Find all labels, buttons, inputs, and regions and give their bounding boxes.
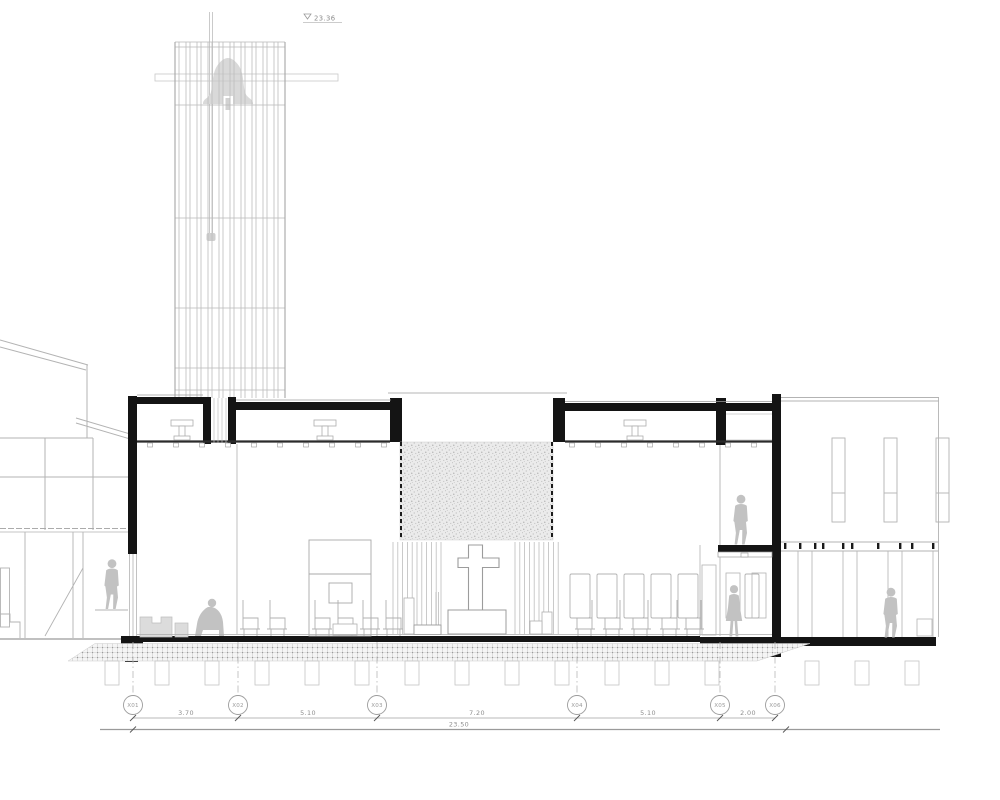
bell-support-beam (155, 74, 338, 81)
annex-mullions (798, 551, 933, 637)
gallery-column (716, 398, 726, 445)
door-panel (702, 565, 716, 635)
grid-bubble-x02: X02 (229, 696, 248, 715)
annex-tick-row (784, 543, 934, 549)
cross-symbol (458, 545, 499, 612)
sanctuary-step-right-2 (530, 621, 542, 634)
grid-bubble-label: X03 (371, 703, 383, 709)
tower-core-slats (214, 398, 226, 443)
roof-slab-mid (236, 402, 391, 410)
dim-seg-2: 5.10 (300, 709, 316, 717)
left-annex-building (0, 340, 137, 639)
annex-box (917, 619, 932, 636)
person-figure-gallery (733, 495, 747, 545)
sanctuary-step-right-1 (542, 612, 552, 634)
person-seated-figure (195, 599, 224, 636)
annex-windows (832, 438, 949, 522)
floor-slab-nave (121, 636, 700, 642)
roof-slab-right (565, 403, 772, 411)
grid-bubble-x05: X05 (711, 696, 730, 715)
left-wall-glazing (130, 554, 137, 636)
gallery-floor-slab (718, 545, 772, 552)
tower-core-column-left (203, 397, 211, 444)
grid-bubble-x01: X01 (124, 696, 143, 715)
dim-seg-1: 3.70 (178, 709, 194, 717)
nave-interior (137, 442, 772, 637)
ambo (414, 625, 441, 635)
foundation (68, 644, 919, 686)
dim-overall: 23.50 (449, 721, 469, 729)
right-annex-building (781, 397, 949, 638)
level-marker: 23.36 (303, 14, 342, 23)
organ-steps-2 (175, 623, 188, 637)
roof-slab-left (137, 397, 203, 404)
grid-bubble-x04: X04 (568, 696, 587, 715)
bell-tower (155, 12, 338, 398)
grid-bubble-label: X06 (769, 703, 781, 709)
section-drawing: 23.36 (0, 0, 1000, 800)
grid-bubble-label: X02 (232, 703, 244, 709)
organ-steps (140, 617, 172, 637)
dim-seg-5: 2.00 (740, 709, 756, 717)
roof-beams (171, 420, 646, 440)
sanctuary-step-left (404, 598, 414, 634)
piles (105, 661, 919, 685)
drawing-canvas: 23.36 (0, 0, 1000, 800)
baptistery-box (309, 540, 371, 636)
foundation-hatch (68, 644, 810, 662)
kneeler-bench (333, 624, 357, 635)
dim-seg-3: 7.20 (469, 709, 485, 717)
grid-bubble-label: X01 (127, 703, 139, 709)
left-cut-wall (128, 396, 137, 554)
tower-core-column-right (228, 397, 236, 444)
clerestory-column-left (390, 398, 402, 442)
grid-bubble-label: X05 (714, 703, 726, 709)
bell-icon (203, 58, 253, 110)
level-triangle-icon (304, 14, 311, 19)
person-figure-left-walkway (104, 559, 118, 609)
grid-bubble-label: X04 (571, 703, 583, 709)
grid-bubble-x03: X03 (368, 696, 387, 715)
clerestory-column-right (553, 398, 565, 442)
altar (448, 610, 506, 634)
level-value: 23.36 (314, 15, 335, 23)
altar-texture-wall (400, 442, 553, 540)
person-figure-right-annex (883, 588, 897, 638)
dim-seg-4: 5.10 (640, 709, 656, 717)
grid-bubble-x06: X06 (766, 696, 785, 715)
right-gallery (700, 414, 772, 637)
right-cut-wall (772, 394, 781, 640)
